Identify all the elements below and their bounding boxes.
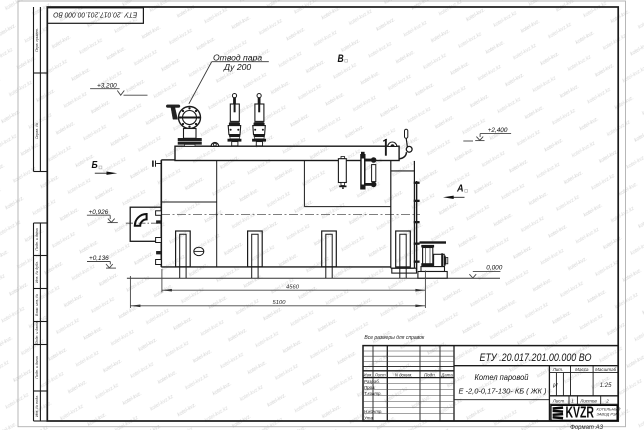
svg-text:Б: Б [92,159,99,171]
svg-text:ЗАВОД РЭП: ЗАВОД РЭП [597,413,619,417]
svg-text:5100: 5100 [273,300,287,306]
svg-text:1:25: 1:25 [600,383,612,389]
svg-text:Н.контр.: Н.контр. [364,409,383,414]
svg-text:4560: 4560 [286,284,300,290]
svg-text:+2,400: +2,400 [488,127,508,134]
svg-text:Изм.: Изм. [364,372,373,377]
svg-text:И: И [553,383,558,390]
svg-text:ЕТУ .20.017.201.00.000 ВО: ЕТУ .20.017.201.00.000 ВО [53,11,137,20]
svg-text:Взам. инв. №: Взам. инв. № [35,294,39,316]
svg-text:ЕТУ .20.017.201.00.000 ВО: ЕТУ .20.017.201.00.000 ВО [480,352,592,364]
svg-text:+0,136: +0,136 [89,255,109,262]
svg-text:А: А [456,182,463,194]
svg-text:Котел паровой: Котел паровой [475,372,529,382]
svg-text:Инв. № дубл.: Инв. № дубл. [35,261,39,283]
svg-text:Лист: Лист [374,372,386,377]
svg-text:Масштаб: Масштаб [595,367,616,372]
svg-text:Подп. и дата: Подп. и дата [35,322,39,345]
svg-text:Утв.: Утв. [364,415,374,420]
svg-text:Е -2,0-0,17-130- КБ ( ЖК ): Е -2,0-0,17-130- КБ ( ЖК ) [459,387,547,396]
svg-text:Перв. примен.: Перв. примен. [35,28,39,52]
svg-text:Т.контр.: Т.контр. [364,391,382,396]
svg-text:+3,200: +3,200 [97,82,117,89]
svg-text:KVZR: KVZR [566,404,595,421]
svg-text:В: В [338,53,344,65]
svg-text:N докум.: N докум. [395,372,413,377]
svg-text:2: 2 [605,399,609,404]
svg-text:Листов: Листов [579,399,597,404]
svg-text:Подп.: Подп. [424,372,436,377]
svg-text:Ду 200: Ду 200 [223,62,251,72]
svg-text:0,000: 0,000 [486,265,502,272]
svg-text:Подп. и дата: Подп. и дата [35,356,39,379]
svg-text:Инв. № подл.: Инв. № подл. [35,395,39,417]
svg-text:Разраб.: Разраб. [364,379,380,384]
svg-text:Отвод пара: Отвод пара [213,52,262,62]
svg-text:+0,926: +0,926 [89,209,109,216]
svg-text:Масса: Масса [575,367,589,372]
svg-text:Подп. и дата: Подп. и дата [35,228,39,251]
svg-text:Все размеры для справок: Все размеры для справок [364,335,425,341]
svg-text:КОТЕЛЬНЫЙ: КОТЕЛЬНЫЙ [597,407,621,411]
svg-text:Формат А3: Формат А3 [570,425,603,430]
svg-text:Справ. №: Справ. № [35,123,39,139]
svg-text:Лист: Лист [552,399,565,404]
svg-text:Дата: Дата [440,372,453,377]
svg-text:Пров.: Пров. [364,385,376,390]
svg-text:Лит.: Лит. [552,367,564,372]
